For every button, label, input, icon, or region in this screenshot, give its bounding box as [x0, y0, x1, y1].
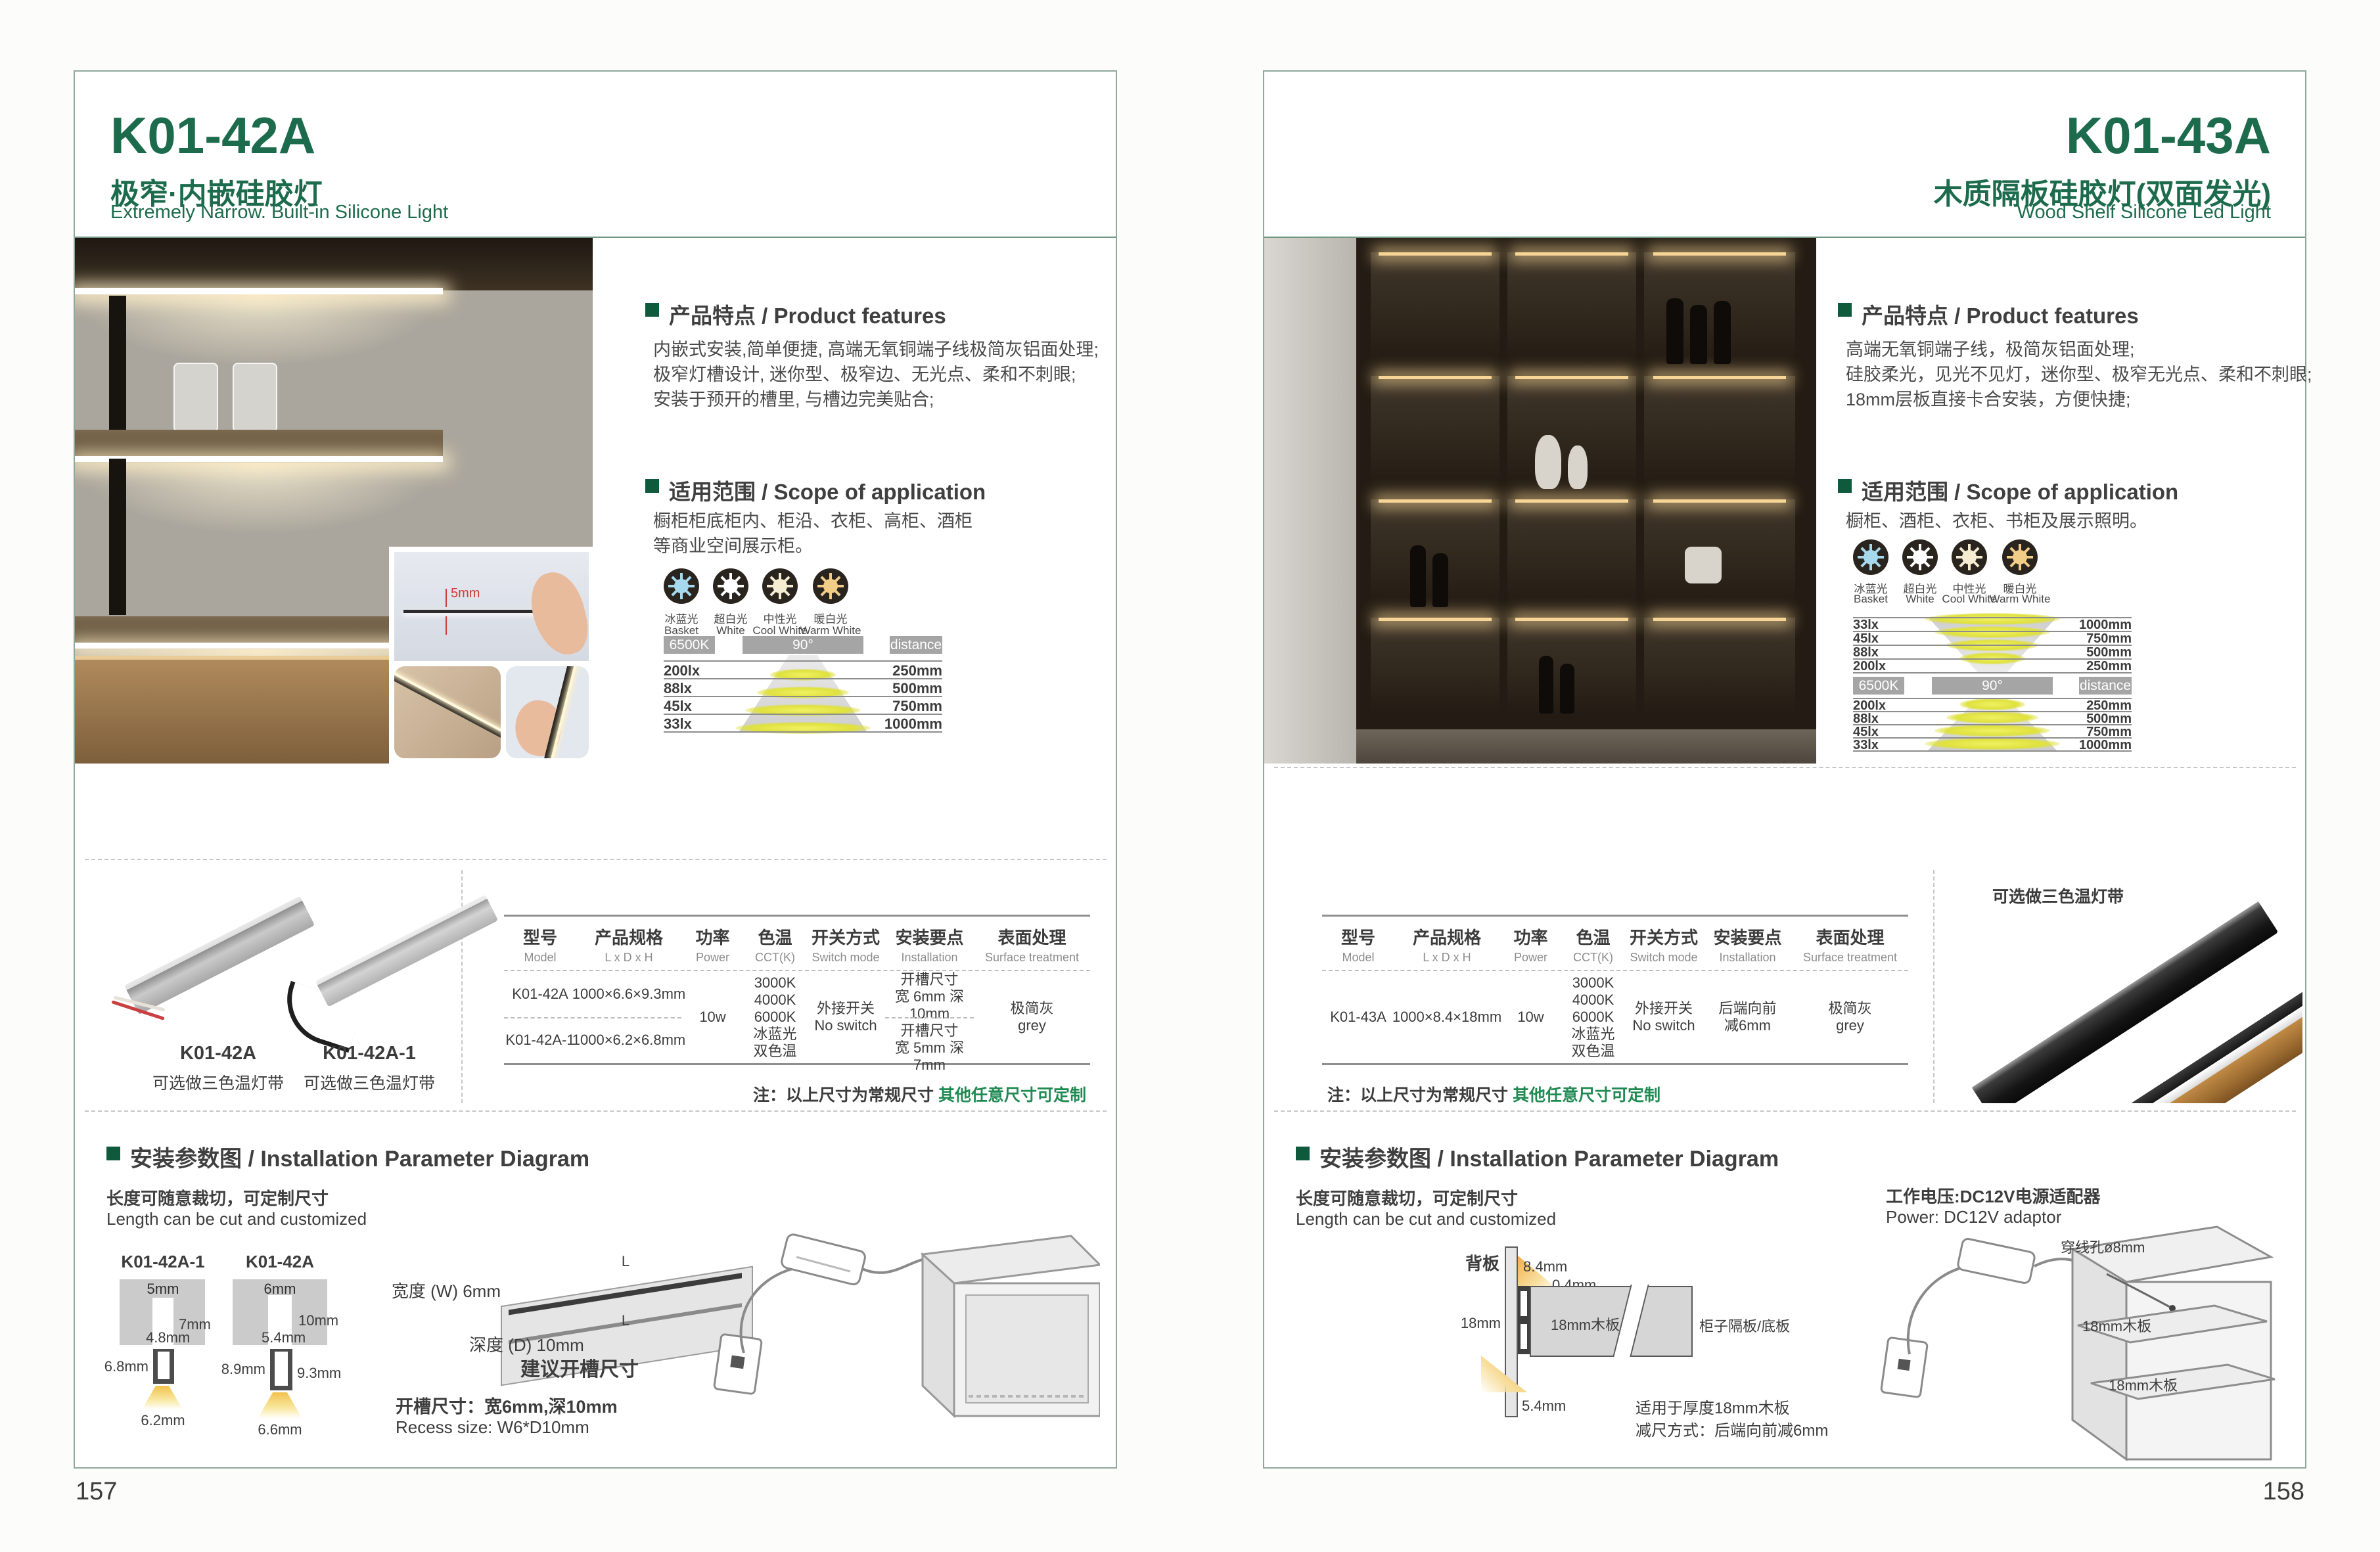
bottle — [1560, 664, 1574, 714]
bottle — [1432, 553, 1448, 607]
scope-line: 橱柜柜底柜内、柜沿、衣柜、高柜、酒柜 — [653, 507, 973, 532]
wiring-cabinet-sketch — [706, 1189, 1100, 1451]
icon-label-en: White — [716, 624, 744, 637]
inset-recessed-strip-photo — [394, 666, 501, 758]
spec-table-header: 型号Model 产品规格L x D x H 功率Power 色温CCT(K) 开… — [1322, 917, 1908, 970]
product-note: 可选做三色温灯带 — [152, 1070, 284, 1094]
page-left: K01-42A 极窄·内嵌硅胶灯 Extremely Narrow. Built… — [74, 70, 1117, 1469]
custom-size-note: 注：以上尺寸为常规尺寸 其他任意尺寸可定制 — [753, 1082, 1086, 1106]
cut-note-en: Length can be cut and customized — [1296, 1209, 1556, 1229]
spec-table: 型号Model 产品规格L x D x H 功率Power 色温CCT(K) 开… — [504, 915, 1090, 1065]
shelf-label: 柜子隔板/底板 — [1699, 1315, 1790, 1336]
bottle — [1410, 545, 1426, 607]
chart-distance-badge: distance — [2079, 677, 2132, 695]
product-note: 可选做三色温灯带 — [304, 1070, 435, 1094]
feature-line: 极窄灯槽设计, 迷你型、极窄边、无光点、柔和不刺眼; — [653, 360, 1076, 386]
shelf-board-label: 18mm木板 — [2109, 1374, 2178, 1395]
product-image-K01-42A-1 — [292, 880, 476, 1038]
page-number: 157 — [76, 1478, 117, 1506]
icon-label-en: Warm White — [800, 624, 861, 637]
chart-row: 33lx1000mm — [1853, 617, 2132, 632]
icon-label-en: Cool White — [752, 624, 807, 637]
page-title-model: K01-43A — [2066, 110, 2271, 161]
wall — [1264, 238, 1356, 764]
cut-note-en: Length can be cut and customized — [106, 1209, 367, 1229]
spec-table-body: K01-42A K01-42A-1 1000×6.6×9.3mm 1000×6.… — [504, 971, 1090, 1063]
suggest-label: 建议开槽尺寸 — [520, 1353, 639, 1382]
fit-note-2: 减尺方式：后端向前减6mm — [1636, 1417, 1828, 1440]
install-heading: 安装参数图 / Installation Parameter Diagram — [130, 1141, 589, 1173]
section-bullet — [1296, 1147, 1310, 1160]
fit-note-1: 适用于厚度18mm木板 — [1636, 1395, 1790, 1418]
thickness-dimension-label: 5mm — [451, 586, 480, 601]
double-profile — [1518, 1286, 1530, 1354]
product-photo-cabinet: 5mm — [75, 238, 593, 764]
page-right: K01-43A 木质隔板硅胶灯(双面发光) Wood Shelf Silicon… — [1263, 70, 2306, 1469]
scope-line: 橱柜、酒柜、衣柜、书柜及展示照明。 — [1846, 507, 2147, 532]
glass-jar — [233, 363, 277, 432]
chart-row: 88lx500mm — [1853, 711, 2132, 725]
chart-row: 45lx750mm — [1853, 724, 2132, 739]
board-label: 18mm木板 — [1551, 1313, 1620, 1335]
spec-table: 型号Model 产品规格L x D x H 功率Power 色温CCT(K) 开… — [1322, 915, 1908, 1065]
scope-heading: 适用范围 / Scope of application — [1862, 474, 2178, 506]
shelf-board-label: 18mm木板 — [2082, 1315, 2151, 1336]
led-strip — [75, 643, 443, 649]
profile-section — [153, 1349, 174, 1384]
wood-shelf — [75, 616, 443, 644]
inset-panel: 5mm — [389, 547, 593, 764]
decor-box — [1685, 547, 1722, 583]
recess-size-cn: 开槽尺寸：宽6mm,深10mm — [396, 1392, 618, 1418]
diagram-label: K01-42A-1 — [121, 1252, 204, 1272]
profile-section — [270, 1349, 292, 1390]
chart-row: 33lx1000mm — [1853, 737, 2132, 752]
section-bullet — [645, 303, 659, 317]
cut-note-cn: 长度可随意裁切，可定制尺寸 — [1296, 1185, 1518, 1210]
product-label: K01-42A-1 — [323, 1043, 416, 1064]
inset-hand-strip-photo — [506, 666, 589, 758]
floor — [1356, 729, 1816, 764]
light-color-icon-white — [713, 568, 748, 604]
product-image-K01-42A — [114, 880, 298, 1038]
spec-table-body: K01-43A 1000×8.4×18mm 10w 3000K4000K6000… — [1322, 971, 1908, 1063]
light-color-icon-warm-white — [2002, 539, 2038, 575]
icon-label-en: White — [1906, 593, 1934, 606]
diagram-label: K01-42A — [246, 1252, 314, 1272]
hand — [524, 566, 593, 660]
icon-label-en: Basket — [1854, 593, 1888, 606]
light-color-icon-cool-white — [762, 568, 798, 604]
light-beam — [258, 1392, 302, 1419]
recess-size-en: Recess size: W6*D10mm — [396, 1417, 589, 1438]
inset-thinness-photo: 5mm — [394, 552, 589, 661]
light-wedge-bottom — [1481, 1356, 1527, 1392]
led-strip — [75, 288, 443, 294]
light-color-icon-warm-white — [813, 568, 848, 604]
chart-row: 200lx250mm — [1853, 698, 2132, 712]
chart-row: 45lx750mm — [1853, 631, 2132, 646]
chart-cct-badge: 6500K — [1853, 677, 1904, 695]
section-bullet — [645, 479, 659, 493]
chart-row: 200lx250mm — [664, 660, 942, 679]
page-title-model: K01-42A — [110, 110, 315, 161]
bottle — [1666, 298, 1683, 364]
feature-line: 18mm层板直接卡合安装，方便快捷; — [1846, 385, 2131, 411]
product-photo-display-cabinet — [1264, 238, 1816, 764]
feature-line: 安装于预开的槽里, 与槽边完美贴合; — [653, 385, 934, 411]
chart-distance-badge: distance — [890, 636, 942, 654]
features-heading: 产品特点 / Product features — [669, 298, 946, 330]
feature-line: 硅胶柔光，见光不见灯，迷你型、极窄无光点、柔和不刺眼; — [1846, 360, 2312, 386]
photo-top-shelf — [75, 238, 593, 290]
light-beam — [142, 1386, 183, 1409]
product-label: K01-42A — [180, 1043, 256, 1064]
wood-counter — [75, 660, 389, 764]
icon-label-en: Warm White — [1990, 593, 2051, 606]
glass-jar — [173, 363, 218, 432]
chart-row: 88lx500mm — [664, 678, 942, 697]
hole-label: 穿线孔ø8mm — [2061, 1236, 2145, 1257]
section-bullet — [1838, 479, 1852, 493]
light-color-icon-ice-blue — [1853, 539, 1888, 575]
bottle — [1539, 656, 1553, 714]
page-title-en: Extremely Narrow. Built-in Silicone Ligh… — [110, 202, 448, 223]
spec-table-header: 型号Model 产品规格L x D x H 功率Power 色温CCT(K) 开… — [504, 917, 1090, 970]
icon-label-en: Basket — [664, 624, 698, 637]
back-panel-label: 背板 — [1465, 1250, 1499, 1275]
led-strip — [75, 456, 443, 462]
chart-row: 200lx250mm — [1853, 658, 2132, 673]
product-image-K01-43A — [1948, 900, 2302, 1103]
catalog-spread: { "meta": { "page_left_number": "157", "… — [0, 0, 2380, 1552]
custom-size-note: 注：以上尺寸为常规尺寸 其他任意尺寸可定制 — [1327, 1082, 1660, 1106]
cut-note-cn: 长度可随意裁切，可定制尺寸 — [106, 1185, 329, 1210]
chart-cct-badge: 6500K — [664, 636, 715, 654]
bottle — [1690, 305, 1707, 364]
page-number: 158 — [2263, 1478, 2304, 1506]
light-color-icon-white — [1902, 539, 1938, 575]
light-color-icon-cool-white — [1952, 539, 1987, 575]
scope-line: 等商业空间展示柜。 — [653, 532, 813, 557]
features-heading: 产品特点 / Product features — [1862, 298, 2139, 330]
figurine — [1568, 445, 1588, 489]
chart-row: 33lx1000mm — [664, 714, 942, 733]
chart-row: 88lx500mm — [1853, 645, 2132, 660]
bottle — [1714, 301, 1731, 364]
chart-row: 45lx750mm — [664, 696, 942, 715]
figurine — [1535, 435, 1561, 489]
install-heading: 安装参数图 / Installation Parameter Diagram — [1319, 1141, 1779, 1173]
wood-shelf — [75, 430, 443, 457]
shelf-bracket — [109, 459, 126, 615]
section-bullet — [106, 1147, 120, 1160]
light-color-icon-ice-blue — [664, 568, 699, 604]
chart-angle-badge: 90° — [1932, 677, 2053, 695]
feature-line: 内嵌式安装,简单便捷, 高端无氧铜端子线极简灰铝面处理; — [653, 335, 1099, 361]
icon-label-en: Cool White — [1942, 593, 1996, 606]
chart-angle-badge: 90° — [743, 636, 863, 654]
scope-heading: 适用范围 / Scope of application — [669, 474, 986, 506]
shelf-bracket — [109, 296, 126, 431]
page-title-en: Wood Shelf Silicone Led Light — [2017, 202, 2271, 223]
section-bullet — [1838, 303, 1852, 317]
board-width-label: 宽度 (W) 6mm — [392, 1278, 501, 1302]
feature-line: 高端无氧铜端子线，极简灰铝面处理; — [1846, 335, 2135, 361]
